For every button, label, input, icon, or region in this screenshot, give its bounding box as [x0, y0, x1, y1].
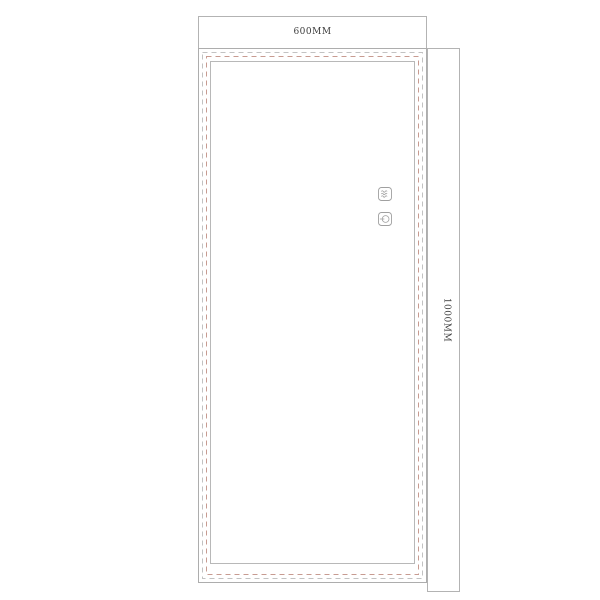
defogger-icon [378, 187, 392, 201]
mirror-technical-drawing: 600MM 1000MM [0, 0, 600, 600]
width-dimension-label: 600MM [293, 28, 331, 37]
height-dimension-label: 1000MM [441, 298, 450, 342]
power-touch-icon [378, 212, 392, 226]
width-dimension-box: 600MM [198, 16, 427, 49]
frosted-area-outline [210, 61, 415, 564]
height-dimension-box: 1000MM [427, 48, 460, 592]
